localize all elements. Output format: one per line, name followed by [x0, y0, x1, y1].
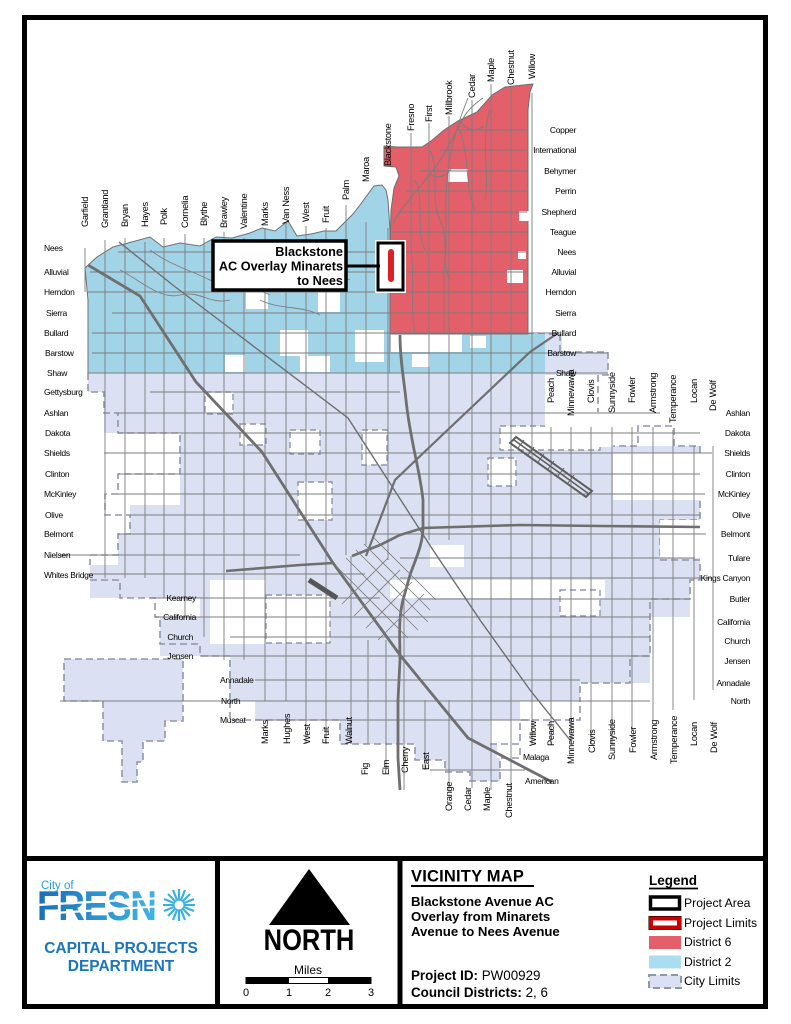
svg-text:Malaga: Malaga — [523, 752, 550, 762]
svg-text:Blythe: Blythe — [199, 202, 209, 226]
svg-text:Fowler: Fowler — [627, 377, 637, 403]
svg-text:Temperance: Temperance — [669, 716, 679, 764]
svg-text:McKinley: McKinley — [718, 489, 751, 499]
svg-text:FRESN: FRESN — [37, 883, 156, 930]
svg-text:Bullard: Bullard — [44, 328, 69, 338]
svg-text:Blackstone Avenue AC: Blackstone Avenue AC — [411, 894, 554, 909]
svg-text:Church: Church — [724, 636, 750, 646]
svg-text:North: North — [221, 696, 241, 706]
svg-text:CAPITAL PROJECTS: CAPITAL PROJECTS — [44, 940, 198, 957]
svg-text:West: West — [302, 723, 312, 744]
svg-text:Cherry: Cherry — [400, 746, 410, 773]
svg-text:Fig: Fig — [360, 763, 370, 775]
svg-text:Perrin: Perrin — [555, 186, 576, 196]
svg-text:Olive: Olive — [732, 510, 750, 520]
svg-text:Bullard: Bullard — [552, 328, 577, 338]
svg-text:Clovis: Clovis — [587, 729, 597, 753]
svg-text:North: North — [731, 696, 751, 706]
svg-text:Teague: Teague — [550, 227, 577, 237]
svg-text:Temperance: Temperance — [668, 375, 678, 423]
svg-text:to Nees: to Nees — [297, 274, 343, 288]
svg-text:Shepherd: Shepherd — [542, 207, 577, 217]
svg-text:Marks: Marks — [260, 720, 270, 744]
svg-text:Blackstone: Blackstone — [275, 245, 343, 259]
svg-text:Nees: Nees — [557, 247, 576, 257]
svg-text:Kings Canyon: Kings Canyon — [701, 573, 751, 583]
svg-text:West: West — [301, 201, 311, 222]
svg-text:Minnewawa: Minnewawa — [566, 716, 576, 764]
svg-text:Hughes: Hughes — [282, 713, 292, 744]
svg-text:Grantland: Grantland — [100, 190, 110, 228]
svg-text:Herndon: Herndon — [545, 287, 576, 297]
svg-text:Ashlan: Ashlan — [726, 408, 751, 418]
svg-text:American: American — [525, 776, 559, 786]
svg-text:Van Ness: Van Ness — [281, 186, 291, 224]
svg-text:California: California — [717, 617, 750, 627]
svg-text:Garfield: Garfield — [80, 197, 90, 227]
svg-text:Barstow: Barstow — [45, 348, 75, 358]
svg-text:Willow: Willow — [528, 720, 538, 746]
svg-text:Willow: Willow — [527, 53, 537, 79]
svg-text:Hayes: Hayes — [140, 201, 150, 227]
svg-text:Cornelia: Cornelia — [180, 195, 190, 228]
svg-text:Maple: Maple — [486, 58, 496, 82]
svg-text:Walnut: Walnut — [344, 716, 354, 744]
svg-text:Palm: Palm — [341, 179, 351, 200]
svg-text:Whites Bridge: Whites Bridge — [44, 570, 94, 580]
svg-text:Kearney: Kearney — [166, 593, 197, 603]
svg-text:Project Limits: Project Limits — [684, 916, 757, 930]
svg-text:Valentine: Valentine — [239, 193, 249, 229]
svg-text:Shields: Shields — [44, 448, 70, 458]
svg-text:VICINITY MAP: VICINITY MAP — [411, 868, 524, 886]
svg-text:Behymer: Behymer — [544, 166, 576, 176]
svg-text:De Wolf: De Wolf — [708, 379, 718, 411]
svg-text:DEPARTMENT: DEPARTMENT — [68, 958, 175, 975]
svg-text:Minnewawa: Minnewawa — [566, 368, 576, 416]
svg-text:Millbrook: Millbrook — [444, 80, 454, 115]
svg-text:East: East — [421, 752, 431, 770]
svg-text:2: 2 — [325, 987, 331, 999]
svg-text:Clinton: Clinton — [726, 469, 751, 479]
svg-text:Armstrong: Armstrong — [649, 720, 659, 760]
svg-text:Muscat: Muscat — [220, 715, 247, 725]
svg-text:Ashlan: Ashlan — [44, 408, 69, 418]
svg-text:Polk: Polk — [159, 207, 169, 225]
svg-text:Olive: Olive — [45, 510, 63, 520]
svg-text:Council Districts: 2, 6: Council Districts: 2, 6 — [411, 985, 548, 1000]
svg-text:Dakota: Dakota — [725, 428, 751, 438]
svg-text:Clinton: Clinton — [45, 469, 70, 479]
svg-text:Maple: Maple — [482, 787, 492, 811]
svg-text:Fowler: Fowler — [628, 727, 638, 753]
svg-text:Annadale: Annadale — [220, 675, 254, 685]
svg-text:0: 0 — [243, 987, 249, 999]
svg-text:Peach: Peach — [546, 721, 556, 746]
svg-text:Herndon: Herndon — [44, 287, 75, 297]
svg-text:Cedar: Cedar — [467, 74, 477, 98]
svg-text:Marks: Marks — [260, 202, 270, 226]
svg-text:Bryan: Bryan — [120, 204, 130, 227]
svg-text:Sierra: Sierra — [46, 308, 67, 318]
svg-text:Blackstone: Blackstone — [383, 123, 393, 166]
svg-text:Peach: Peach — [546, 378, 556, 403]
svg-text:Church: Church — [167, 632, 193, 642]
svg-text:Fruit: Fruit — [321, 726, 331, 744]
svg-text:Barstow: Barstow — [547, 348, 577, 358]
svg-text:Copper: Copper — [550, 125, 577, 135]
svg-text:Alluvial: Alluvial — [551, 267, 576, 277]
svg-text:1: 1 — [286, 987, 292, 999]
svg-text:Armstrong: Armstrong — [648, 373, 658, 413]
svg-text:NORTH: NORTH — [264, 923, 355, 956]
svg-text:Shields: Shields — [724, 448, 750, 458]
svg-text:Nielsen: Nielsen — [44, 550, 71, 560]
svg-text:Project Area: Project Area — [684, 896, 751, 910]
svg-text:Alluvial: Alluvial — [44, 267, 69, 277]
svg-text:Chestnut: Chestnut — [504, 782, 514, 818]
svg-text:California: California — [163, 612, 196, 622]
svg-text:Project ID: PW00929: Project ID: PW00929 — [411, 968, 541, 983]
svg-text:City Limits: City Limits — [684, 974, 740, 988]
svg-text:Miles: Miles — [294, 963, 322, 977]
svg-text:Sunnyside: Sunnyside — [607, 372, 617, 413]
svg-text:McKinley: McKinley — [44, 489, 77, 499]
svg-text:Overlay from Minarets: Overlay from Minarets — [411, 909, 550, 924]
svg-text:Gettysburg: Gettysburg — [44, 387, 83, 397]
svg-text:Locan: Locan — [689, 722, 699, 746]
svg-text:Fruit: Fruit — [321, 205, 331, 223]
svg-text:Shaw: Shaw — [47, 368, 68, 378]
svg-text:Brawley: Brawley — [219, 196, 229, 228]
svg-text:Elm: Elm — [381, 759, 391, 775]
svg-text:De Wolf: De Wolf — [709, 721, 719, 753]
svg-text:Legend: Legend — [649, 873, 697, 888]
svg-text:AC Overlay Minarets: AC Overlay Minarets — [219, 260, 343, 274]
svg-text:Dakota: Dakota — [45, 428, 71, 438]
svg-text:3: 3 — [368, 987, 374, 999]
svg-text:Chestnut: Chestnut — [506, 49, 516, 85]
svg-text:Belmont: Belmont — [721, 529, 751, 539]
svg-text:First: First — [424, 105, 434, 122]
svg-text:Tulare: Tulare — [728, 553, 751, 563]
svg-text:Nees: Nees — [44, 243, 63, 253]
svg-text:Avenue to Nees Avenue: Avenue to Nees Avenue — [411, 924, 560, 939]
svg-text:District 2: District 2 — [684, 955, 732, 969]
svg-text:Jensen: Jensen — [167, 651, 193, 661]
svg-text:Belmont: Belmont — [44, 529, 74, 539]
svg-text:International: International — [533, 145, 576, 155]
svg-text:Annadale: Annadale — [716, 678, 750, 688]
svg-text:Sierra: Sierra — [555, 308, 576, 318]
svg-text:Fresno: Fresno — [406, 104, 416, 131]
svg-text:Orange: Orange — [444, 782, 454, 811]
svg-text:Maroa: Maroa — [361, 156, 371, 182]
svg-text:Cedar: Cedar — [463, 787, 473, 811]
svg-text:District 6: District 6 — [684, 935, 732, 949]
svg-text:Butler: Butler — [730, 594, 751, 604]
svg-text:Clovis: Clovis — [586, 379, 596, 403]
svg-text:Locan: Locan — [689, 379, 699, 403]
svg-text:Jensen: Jensen — [724, 656, 750, 666]
svg-text:Sunnyside: Sunnyside — [607, 719, 617, 760]
